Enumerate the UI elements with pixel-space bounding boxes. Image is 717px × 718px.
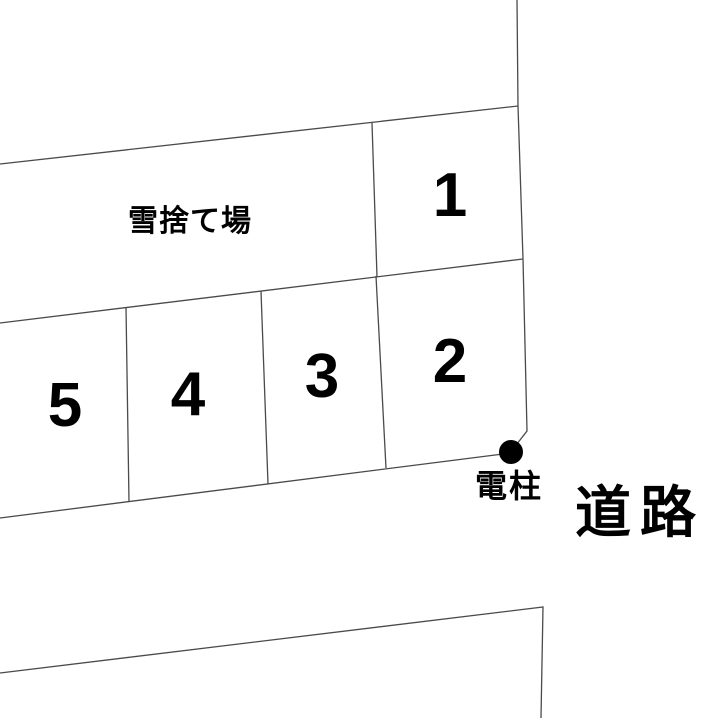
parking-space-3-label: 3 [305, 342, 339, 411]
top-band-upper-boundary-line [0, 106, 518, 164]
utility-pole-label: 電柱 [475, 468, 543, 504]
parking-space-5-label: 5 [48, 371, 82, 440]
snow-dump-area-label: 雪捨て場 [128, 204, 252, 238]
parking-space-1-label: 1 [433, 161, 467, 230]
divider-space4-space3-line [261, 291, 268, 484]
site-plan-canvas: 雪捨て場 1 2 3 4 5 電柱 道路 [0, 0, 717, 718]
divider-space3-space2-line [376, 276, 386, 468]
lower-band-boundary-line [0, 454, 503, 518]
road-edge-boundary-line [513, 0, 527, 449]
snow-area-space1-divider-line [372, 123, 377, 277]
bottom-lot-boundary-line [0, 607, 543, 718]
site-plan-svg: 雪捨て場 1 2 3 4 5 電柱 道路 [0, 0, 717, 718]
divider-space5-space4-line [126, 307, 129, 502]
road-label: 道路 [575, 481, 705, 544]
parking-space-4-label: 4 [171, 360, 206, 429]
parking-space-2-label: 2 [433, 327, 467, 396]
utility-pole-dot [499, 440, 523, 464]
